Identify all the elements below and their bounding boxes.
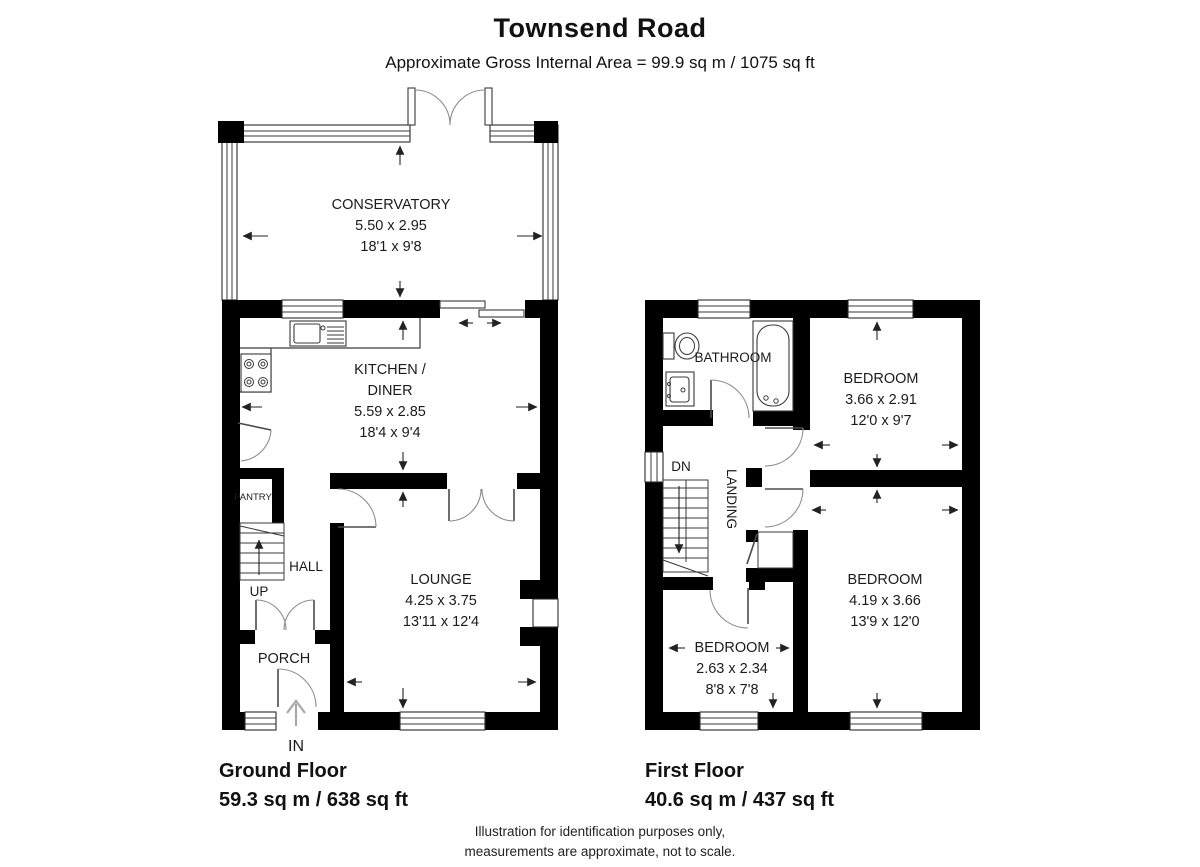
ground-floor-caption: Ground Floor 59.3 sq m / 638 sq ft (219, 757, 408, 815)
first-floor-caption: First Floor 40.6 sq m / 437 sq ft (645, 757, 834, 815)
first-floor-name: First Floor (645, 757, 834, 786)
bathroom-window (698, 300, 750, 318)
disclaimer-line1: Illustration for identification purposes… (0, 822, 1200, 842)
bedroom-front-label: BEDROOM (844, 371, 919, 387)
bedroom-rear-door (765, 489, 803, 527)
kitchen-sink (290, 321, 346, 346)
bedroom-small-imperial: 8'8 x 7'8 (705, 682, 758, 698)
conservatory-imperial: 18'1 x 9'8 (360, 239, 421, 255)
bedroom-front-imperial: 12'0 x 9'7 (850, 413, 911, 429)
conservatory-french-doors (408, 88, 492, 125)
sliding-door (440, 301, 524, 323)
conservatory-metric: 5.50 x 2.95 (355, 218, 427, 234)
conservatory-label: CONSERVATORY (332, 197, 451, 213)
kitchen-label-line2: DINER (367, 383, 412, 399)
lounge-fireplace (520, 580, 558, 646)
basin (666, 372, 694, 406)
kitchen-lounge-double-doors (449, 489, 514, 521)
stairs-dn-label: DN (671, 459, 691, 474)
ground-interior-walls (222, 420, 540, 712)
pantry-door (238, 423, 271, 461)
lounge-imperial: 13'11 x 12'4 (403, 614, 479, 630)
stairs-up-label: UP (250, 584, 269, 599)
first-floor-plan: BATHROOM BEDROOM 3.66 x 2.91 12'0 x 9'7 … (645, 300, 980, 730)
bedroom-front-window (848, 300, 913, 318)
landing-window (645, 452, 663, 482)
lounge-door (338, 489, 376, 527)
entrance-in-arrow (287, 701, 305, 726)
lounge-window (400, 712, 485, 730)
first-floor-area: 40.6 sq m / 437 sq ft (645, 786, 834, 815)
lounge-label: LOUNGE (410, 572, 472, 588)
bathtub (753, 321, 793, 411)
kitchen-metric: 5.59 x 2.85 (354, 404, 426, 420)
bedroom-front-metric: 3.66 x 2.91 (845, 392, 917, 408)
kitchen-label-line1: KITCHEN / (354, 362, 427, 378)
lounge-metric: 4.25 x 3.75 (405, 593, 477, 609)
stairs-down (663, 480, 708, 576)
bedroom-small-window (700, 712, 758, 730)
pantry-label: PANTRY (234, 492, 272, 503)
porch-label: PORCH (258, 651, 310, 667)
floorplan-page: { "header": { "title": "Townsend Road", … (0, 0, 1200, 867)
ground-floor-name: Ground Floor (219, 757, 408, 786)
bedroom-rear-metric: 4.19 x 3.66 (849, 593, 921, 609)
floorplan-drawing: CONSERVATORY 5.50 x 2.95 18'1 x 9'8 KITC… (0, 0, 1200, 867)
disclaimer-line2: measurements are approximate, not to sca… (0, 842, 1200, 862)
bedroom-rear-imperial: 13'9 x 12'0 (850, 614, 919, 630)
kitchen-window (282, 300, 343, 318)
landing-label: LANDING (724, 469, 739, 529)
bedroom-small-metric: 2.63 x 2.34 (696, 661, 768, 677)
disclaimer: Illustration for identification purposes… (0, 822, 1200, 862)
bedroom-rear-label: BEDROOM (848, 572, 923, 588)
hall-label: HALL (289, 559, 323, 574)
bedroom-rear-window (850, 712, 922, 730)
bathroom-door (711, 380, 749, 418)
ground-floor-area: 59.3 sq m / 638 sq ft (219, 786, 408, 815)
kitchen-hob (241, 354, 271, 392)
bedroom-small-door (710, 588, 748, 628)
bathroom-label: BATHROOM (695, 350, 772, 365)
bedroom-front-door (765, 428, 803, 466)
stairs-up (240, 523, 284, 580)
porch-double-doors (256, 600, 314, 630)
ground-floor-plan: CONSERVATORY 5.50 x 2.95 18'1 x 9'8 KITC… (218, 88, 558, 755)
bedroom-small-label: BEDROOM (695, 640, 770, 656)
porch-window (245, 712, 276, 730)
entrance-in-label: IN (288, 738, 304, 755)
kitchen-imperial: 18'4 x 9'4 (359, 425, 420, 441)
